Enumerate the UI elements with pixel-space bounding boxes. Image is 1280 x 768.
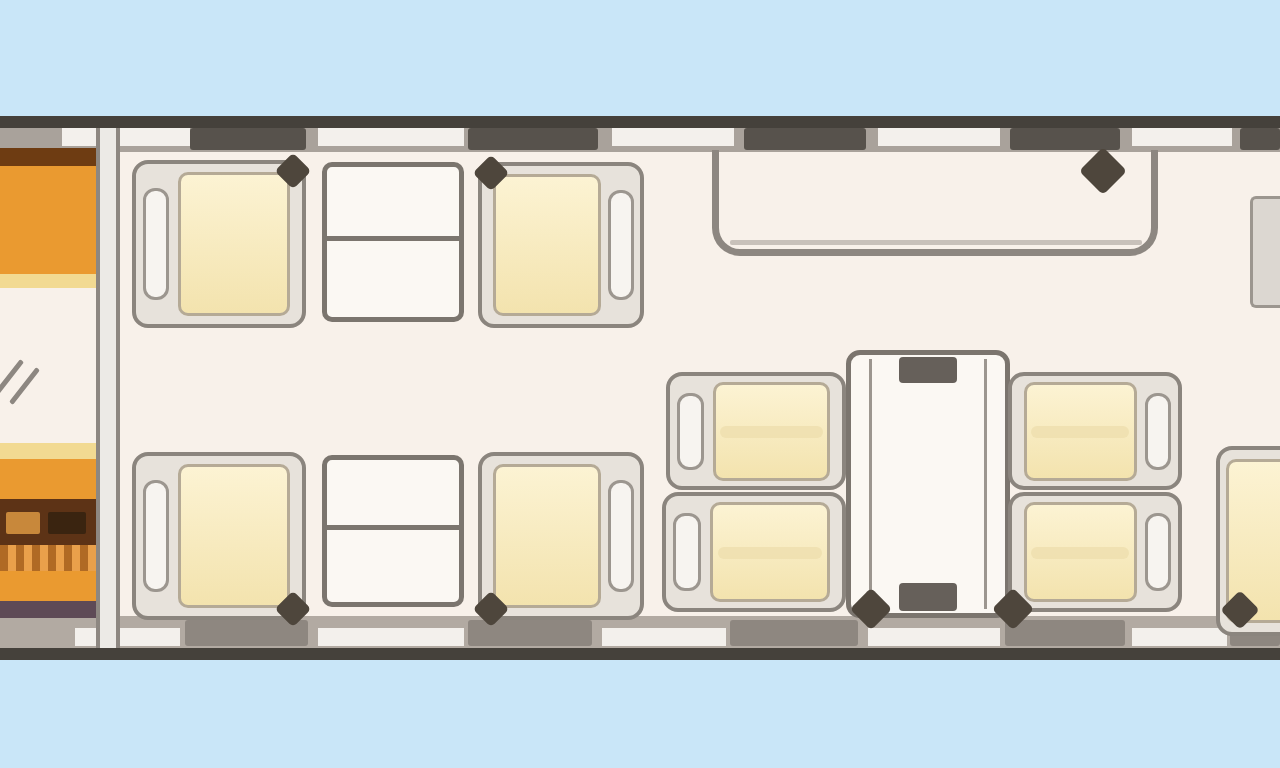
bottom-wall-gap [318, 628, 464, 646]
club-table-top [322, 162, 464, 322]
conference-seat-right-lower [1008, 492, 1182, 612]
seat-cushion [493, 174, 600, 316]
aircraft-floorplan [0, 0, 1280, 768]
top-wall-gap [318, 128, 464, 146]
club-seat-forward-right-top [478, 162, 644, 328]
cushion-seam [1031, 547, 1129, 558]
galley-lower-cabinet [0, 459, 96, 499]
galley-wood-slats [0, 545, 96, 571]
table-pedestal-tab [899, 357, 957, 383]
conference-seat-left-upper [666, 372, 846, 490]
cabin-window [1010, 128, 1120, 150]
conference-seat-left-lower [662, 492, 846, 612]
seat-back-cushion [143, 188, 170, 300]
top-wall-gap [62, 128, 190, 146]
table-edge-line [869, 359, 872, 609]
table-divider [327, 525, 459, 530]
cabin-window [1240, 128, 1280, 150]
bottom-wall-gap [868, 628, 1000, 646]
cushion-seam [1031, 426, 1129, 437]
galley-bulkhead-partition [96, 128, 120, 648]
seat-back-cushion [677, 393, 705, 470]
club-seat-forward-left-top [132, 160, 306, 328]
top-wall-gap [612, 128, 734, 146]
seat-cushion [178, 172, 291, 316]
bottom-wall-gap [602, 628, 726, 646]
galley-top-shelf-strip [0, 274, 96, 288]
conference-table [846, 350, 1010, 618]
seat-cushion [713, 382, 830, 481]
galley-base-strip [0, 601, 96, 618]
club-table-bottom [322, 455, 464, 607]
bottom-wall-gap [75, 628, 180, 646]
fuselage-bottom-outline [0, 648, 1280, 660]
seat-back-cushion [1145, 393, 1172, 470]
cushion-seam [718, 547, 823, 558]
divan-inner-line [730, 240, 1142, 245]
cabin-window [1005, 620, 1125, 646]
galley-lower-cabinet-2 [0, 571, 96, 601]
conference-seat-right-upper [1008, 372, 1182, 490]
cabin-window [190, 128, 306, 150]
seat-cushion [1024, 382, 1137, 481]
seat-cushion [493, 464, 600, 608]
table-divider [327, 236, 459, 241]
top-wall-gap [878, 128, 1000, 146]
seat-back-cushion [608, 480, 633, 592]
seat-back-cushion [673, 513, 701, 591]
seat-back-cushion [1145, 513, 1172, 591]
galley-drawer [6, 512, 40, 534]
table-pedestal-tab [899, 583, 957, 611]
galley-drawer [48, 512, 86, 534]
cabin-window [730, 620, 858, 646]
cabin-window [744, 128, 866, 150]
galley-lower-shelf-strip [0, 443, 96, 459]
galley-top-counter-edge [0, 148, 96, 166]
seat-cushion [1024, 502, 1137, 603]
club-seat-forward-right-bottom [478, 452, 644, 620]
seat-back-cushion [143, 480, 170, 592]
aft-cabinet-partial [1250, 196, 1280, 308]
seat-back-cushion [608, 190, 633, 301]
seat-cushion [710, 502, 830, 603]
fuselage-top-outline [0, 116, 1280, 128]
top-wall-gap [1132, 128, 1232, 146]
bottom-wall-gap [1132, 628, 1227, 646]
club-seat-forward-left-bottom [132, 452, 306, 620]
cushion-seam [720, 426, 822, 437]
seat-cushion [178, 464, 291, 608]
table-edge-line [984, 359, 987, 609]
galley-top-cabinet [0, 166, 96, 274]
cabin-window [468, 128, 598, 150]
